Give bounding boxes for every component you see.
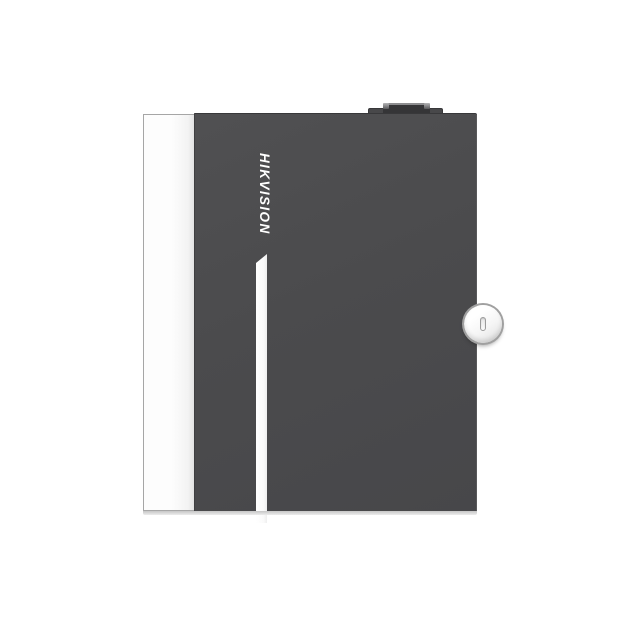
enclosure-side-panel bbox=[143, 114, 194, 511]
product-photo: HIKVISION bbox=[0, 0, 620, 620]
door-lock bbox=[464, 305, 502, 343]
device-enclosure: HIKVISION bbox=[143, 103, 477, 515]
enclosure-front-door: HIKVISION bbox=[194, 113, 477, 512]
accent-stripe bbox=[256, 254, 267, 523]
enclosure-base-edge bbox=[143, 511, 477, 515]
hikvision-logo: HIKVISION bbox=[256, 153, 272, 247]
keyhole-icon bbox=[480, 317, 486, 331]
